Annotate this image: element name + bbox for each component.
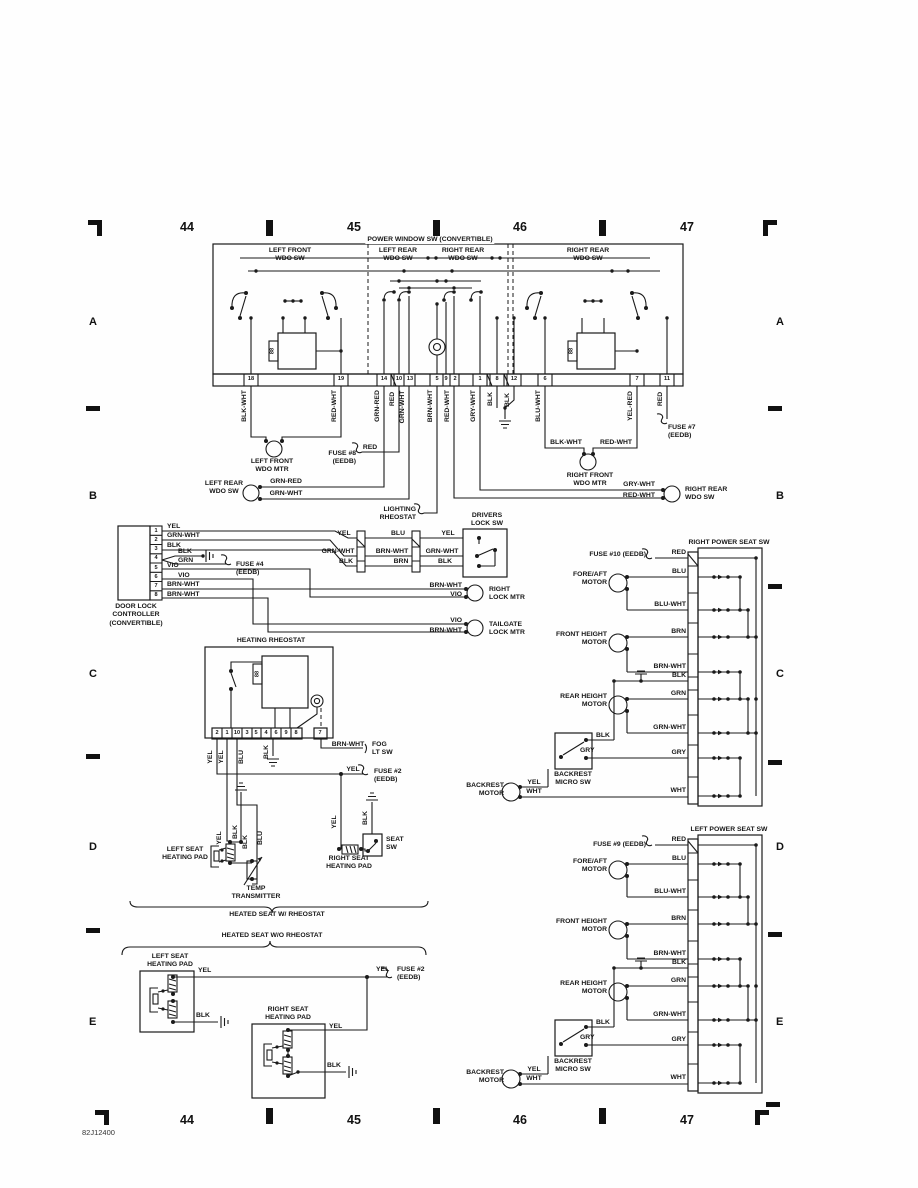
- ruler-tick: [266, 220, 273, 236]
- margin-dash: [768, 406, 782, 411]
- wire-color-label: RED: [672, 549, 686, 557]
- heating-pad-label: RIGHT SEAT HEATING PAD: [326, 855, 372, 872]
- pin-number: 18: [248, 376, 254, 383]
- heating-pad-label: RIGHT SEAT HEATING PAD: [265, 1006, 311, 1023]
- motor-label: FRONT HEIGHT MOTOR: [556, 631, 607, 648]
- left-rear-window-switch-connector-icon: [243, 485, 259, 501]
- margin-dash: [768, 584, 782, 589]
- grid-letter: E: [776, 1016, 783, 1028]
- rheostat-label: LIGHTING RHEOSTAT: [380, 506, 416, 523]
- pin-number: 9: [444, 376, 447, 383]
- pin-number: 12: [511, 376, 517, 383]
- pin-number: 10: [396, 376, 402, 383]
- pin-number: 14: [381, 376, 387, 383]
- wire-color-label: YEL: [218, 750, 226, 763]
- wire-color-label: YEL: [198, 967, 211, 975]
- margin-dash: [766, 1102, 780, 1107]
- margin-dash: [768, 760, 782, 765]
- section-title: HEATING RHEOSTAT: [237, 637, 305, 645]
- corner-mark: [755, 1110, 760, 1125]
- grid-letter: A: [776, 316, 784, 328]
- right-lock-motor-icon: [467, 585, 483, 601]
- motor-label: BACKREST MOTOR: [466, 782, 504, 799]
- grid-letter: D: [89, 841, 97, 853]
- pin-number: 3: [245, 730, 248, 737]
- fuse-label: FUSE #9 (EEDB): [593, 841, 646, 849]
- pin-number: 11: [664, 376, 670, 383]
- relay-label: 88: [569, 348, 576, 354]
- wire-color-label: GRN-RED: [270, 478, 302, 486]
- wire-color-label: WHT: [671, 1074, 686, 1082]
- power-seat-switch-assembly: [502, 548, 762, 806]
- wire-color-label: VIO: [450, 617, 462, 625]
- wire-color-label: BLK: [596, 1019, 610, 1027]
- wire-color-label: GRY-WHT: [623, 481, 655, 489]
- ground-icon: [221, 1016, 228, 1028]
- pin-number: 10: [234, 730, 240, 737]
- window-motor-wiring: [243, 386, 680, 514]
- wire-color-label: GRN-WHT: [653, 1011, 686, 1019]
- pin-number: 5: [254, 730, 257, 737]
- pin-number: 8: [495, 376, 498, 383]
- wire-color-label: RED: [672, 836, 686, 844]
- motor-label: BACKREST MOTOR: [466, 1069, 504, 1086]
- wire-color-label: YEL: [527, 1066, 540, 1074]
- motor-label: REAR HEIGHT MOTOR: [560, 980, 607, 997]
- wire-color-label: BLK-WHT: [241, 390, 249, 422]
- wire-color-label: BRN-WHT: [430, 582, 462, 590]
- wire-color-label: GRY: [672, 749, 686, 757]
- section-title: LEFT POWER SEAT SW: [691, 826, 768, 834]
- margin-dash: [86, 406, 100, 411]
- wire-color-label: BLU: [672, 855, 686, 863]
- wire-color-label: GRN: [178, 557, 193, 565]
- wire-color-label: YEL: [331, 815, 339, 828]
- margin-dash: [86, 928, 100, 933]
- wire-color-label: RED: [389, 392, 397, 406]
- pin-number: 4: [154, 555, 157, 562]
- temp-transmitter-icon: [244, 857, 262, 885]
- fuse-label: FUSE #10 (EEDB): [589, 551, 646, 559]
- illumination-lamp-icon: [429, 302, 445, 374]
- right-front-window-motor-icon: [580, 454, 596, 470]
- wire-color-label: YEL: [527, 779, 540, 787]
- wire-color-label: WHT: [671, 787, 686, 795]
- grid-number: 44: [180, 1113, 194, 1127]
- ruler-tick: [599, 220, 606, 236]
- grid-number: 47: [680, 1113, 694, 1127]
- wire-color-label: GRN: [671, 977, 686, 985]
- controller-label: DOOR LOCK CONTROLLER (CONVERTIBLE): [109, 603, 162, 628]
- page-code: 82J12400: [82, 1128, 115, 1137]
- wire-color-label: BLK: [672, 672, 686, 680]
- wire-color-label: BRN: [671, 628, 686, 636]
- wire-color-label: RED-WHT: [331, 390, 339, 422]
- switch-label: LEFT REAR WDO SW: [205, 480, 243, 497]
- section-title: RIGHT POWER SEAT SW: [688, 539, 769, 547]
- switch-label: FOG LT SW: [372, 741, 393, 758]
- relay-label: 88: [270, 348, 277, 354]
- pin-number: 6: [543, 376, 546, 383]
- ground-icon: [267, 759, 279, 766]
- grid-number: 44: [180, 220, 194, 234]
- group-caption: HEATED SEAT W/O RHEOSTAT: [222, 932, 323, 940]
- margin-dash: [86, 754, 100, 759]
- wire-color-label: YEL: [167, 523, 180, 531]
- lamp-icon: [311, 695, 323, 707]
- pin-number: 9: [284, 730, 287, 737]
- wire-color-label: GRN-WHT: [167, 532, 200, 540]
- heating-pad-label: LEFT SEAT HEATING PAD: [162, 846, 208, 863]
- wire-color-label: BLK: [487, 392, 495, 406]
- fuse-label: FUSE #4 (EEDB): [236, 561, 264, 578]
- pin-number: 4: [264, 730, 267, 737]
- grid-number: 45: [347, 1113, 361, 1127]
- wire-color-label: BLU: [391, 530, 405, 538]
- pin-number: 1: [154, 528, 157, 535]
- wire-color-label: GRN-WHT: [426, 548, 459, 556]
- pin-number: 13: [407, 376, 413, 383]
- grid-letter: C: [89, 668, 97, 680]
- wire-color-label: VIO: [450, 591, 462, 599]
- wire-color-label: YEL: [441, 530, 454, 538]
- relay-box-icon: [269, 333, 343, 369]
- pin-number: 1: [225, 730, 228, 737]
- wire-color-label: BLK-WHT: [550, 439, 582, 447]
- motor-label: TAILGATE LOCK MTR: [489, 621, 525, 638]
- wire-color-label: GRY-WHT: [470, 390, 478, 422]
- fuse-label: FUSE #7 (EEDB): [668, 424, 696, 441]
- wire-color-label: BLK: [178, 548, 192, 556]
- ruler-tick: [433, 1108, 440, 1124]
- wire-color-label: GRN: [671, 690, 686, 698]
- wire-color-label: BRN: [671, 915, 686, 923]
- wire-color-label: BLK: [196, 1012, 210, 1020]
- switch-label: LEFT REAR WDO SW: [379, 247, 417, 264]
- wire-color-label: YEL: [207, 750, 215, 763]
- switch-label: BACKREST MICRO SW: [554, 1058, 592, 1075]
- pin-number: 2: [154, 537, 157, 544]
- switch-label: SEAT SW: [386, 836, 404, 853]
- corner-mark: [97, 220, 102, 236]
- wire-color-label: BLU: [238, 750, 246, 764]
- relay-box-icon: [568, 333, 639, 369]
- wire-color-label: VIO: [167, 562, 179, 570]
- wire-color-label: WHT: [526, 788, 541, 796]
- wiring-diagram-page: 44 45 46 47 44 45 46 47 A B C D E A B C …: [0, 0, 918, 1188]
- fuse-label: FUSE #8 (EEDB): [328, 450, 356, 467]
- wire-color-label: GRN-RED: [374, 390, 382, 422]
- group-caption: HEATED SEAT W/ RHEOSTAT: [229, 911, 324, 919]
- pin-number: 2: [215, 730, 218, 737]
- wire-color-label: YEL: [346, 766, 359, 774]
- wire-color-label: BLU-WHT: [654, 601, 686, 609]
- wire-color-label: RED-WHT: [623, 492, 655, 500]
- wire-color-label: BLK: [242, 835, 250, 849]
- wire-color-label: BRN-WHT: [427, 390, 435, 422]
- grid-number: 46: [513, 1113, 527, 1127]
- pin-number: 7: [318, 730, 321, 737]
- wire-color-label: GRN-WHT: [270, 490, 303, 498]
- pin-number: 8: [294, 730, 297, 737]
- heating-pad-label: LEFT SEAT HEATING PAD: [147, 953, 193, 970]
- ruler-tick: [433, 220, 440, 236]
- motor-label: REAR HEIGHT MOTOR: [560, 693, 607, 710]
- pin-number: 3: [154, 546, 157, 553]
- heating-rheostat-wiring: [122, 647, 428, 955]
- pin-number: 6: [154, 574, 157, 581]
- pin-number: 5: [154, 565, 157, 572]
- pin-number: 8: [154, 592, 157, 599]
- ground-icon: [349, 1066, 356, 1078]
- motor-label: FORE/AFT MOTOR: [573, 858, 607, 875]
- ground-icon: [499, 421, 511, 428]
- transmitter-label: TEMP TRANSMITTER: [232, 885, 281, 902]
- ruler-tick: [266, 1108, 273, 1124]
- relay-label: 88: [255, 671, 262, 677]
- pin-number: 7: [154, 583, 157, 590]
- wire-color-label: BLK: [596, 732, 610, 740]
- wire-color-label: BLU-WHT: [654, 888, 686, 896]
- ground-icon: [206, 550, 213, 562]
- wire-color-label: YEL: [337, 530, 350, 538]
- switch-label: DRIVERS LOCK SW: [471, 512, 503, 529]
- pin-number: 5: [435, 376, 438, 383]
- switch-label: RIGHT REAR WDO SW: [442, 247, 484, 264]
- wire-color-label: BRN-WHT: [430, 627, 462, 635]
- motor-label: LEFT FRONT WDO MTR: [251, 458, 293, 475]
- wire-color-label: BLK: [263, 745, 271, 759]
- grid-number: 45: [347, 220, 361, 234]
- wire-color-label: BRN-WHT: [376, 548, 408, 556]
- switch-label: RIGHT REAR WDO SW: [685, 486, 727, 503]
- grid-letter: E: [89, 1016, 96, 1028]
- wire-color-label: BRN: [394, 558, 409, 566]
- corner-mark: [763, 220, 768, 236]
- drivers-lock-switch-icon: [463, 529, 507, 577]
- wire-color-label: BRN-WHT: [654, 663, 686, 671]
- wire-color-label: RED-WHT: [600, 439, 632, 447]
- section-title: POWER WINDOW SW (CONVERTIBLE): [365, 236, 494, 244]
- wire-color-label: BLU-WHT: [535, 390, 543, 422]
- right-rear-window-switch-connector-icon: [664, 486, 680, 502]
- wire-color-label: GRN-WHT: [653, 724, 686, 732]
- grid-letter: A: [89, 316, 97, 328]
- wire-color-label: BRN-WHT: [654, 950, 686, 958]
- power-window-switch-box: [213, 244, 683, 386]
- motor-label: FRONT HEIGHT MOTOR: [556, 918, 607, 935]
- wire-color-label: BLK: [504, 393, 512, 407]
- wire-color-label: BRN-WHT: [167, 591, 199, 599]
- grid-letter: D: [776, 841, 784, 853]
- corner-mark: [104, 1110, 109, 1125]
- wire-color-label: GRY: [580, 747, 594, 755]
- wire-color-label: BLU: [672, 568, 686, 576]
- motor-label: FORE/AFT MOTOR: [573, 571, 607, 588]
- tailgate-lock-motor-icon: [467, 620, 483, 636]
- wire-color-label: GRN-WHT: [322, 548, 355, 556]
- pin-number: 19: [338, 376, 344, 383]
- grid-number: 47: [680, 220, 694, 234]
- wire-color-label: BLK: [232, 825, 240, 839]
- wire-color-label: WHT: [526, 1075, 541, 1083]
- ground-icon: [366, 793, 378, 800]
- wire-color-label: YEL: [376, 966, 389, 974]
- grid-number: 46: [513, 220, 527, 234]
- wire-color-label: GRN-WHT: [399, 391, 407, 424]
- wire-color-label: RED: [363, 444, 377, 452]
- fuse-label: FUSE #2 (EEDB): [397, 966, 425, 983]
- switch-label: LEFT FRONT WDO SW: [269, 247, 311, 264]
- left-front-window-motor-icon: [266, 441, 282, 457]
- wire-color-label: BRN-WHT: [332, 741, 364, 749]
- motor-label: RIGHT LOCK MTR: [489, 586, 525, 603]
- wire-color-label: BLK: [327, 1062, 341, 1070]
- wire-color-label: RED: [657, 392, 665, 406]
- wire-color-label: VIO: [178, 572, 190, 580]
- pin-number: 2: [453, 376, 456, 383]
- pin-number: 6: [274, 730, 277, 737]
- wire-color-label: BRN-WHT: [167, 581, 199, 589]
- switch-label: RIGHT REAR WDO SW: [567, 247, 609, 264]
- pin-number: 1: [478, 376, 481, 383]
- grid-letter: B: [89, 490, 97, 502]
- wire-color-label: BLK: [362, 811, 370, 825]
- pin-number: 7: [635, 376, 638, 383]
- no-rheostat-wiring: [140, 968, 392, 1098]
- wire-color-label: BLK: [672, 959, 686, 967]
- wire-color-label: GRY: [580, 1034, 594, 1042]
- ruler-tick: [599, 1108, 606, 1124]
- wire-color-label: BLK: [438, 558, 452, 566]
- wire-color-label: BLK: [339, 558, 353, 566]
- rear-window-switch-icons: [382, 279, 483, 374]
- wire-color-label: YEL-RED: [627, 391, 635, 421]
- motor-label: RIGHT FRONT WDO MTR: [567, 472, 613, 489]
- wire-color-label: YEL: [216, 831, 224, 844]
- wire-color-label: YEL: [329, 1023, 342, 1031]
- fuse-label: FUSE #2 (EEDB): [374, 768, 402, 785]
- switch-label: BACKREST MICRO SW: [554, 771, 592, 788]
- wire-color-label: RED-WHT: [444, 390, 452, 422]
- margin-dash: [768, 932, 782, 937]
- grid-letter: C: [776, 668, 784, 680]
- wire-color-label: GRY: [672, 1036, 686, 1044]
- grid-letter: B: [776, 490, 784, 502]
- wire-color-label: BLU: [257, 831, 265, 845]
